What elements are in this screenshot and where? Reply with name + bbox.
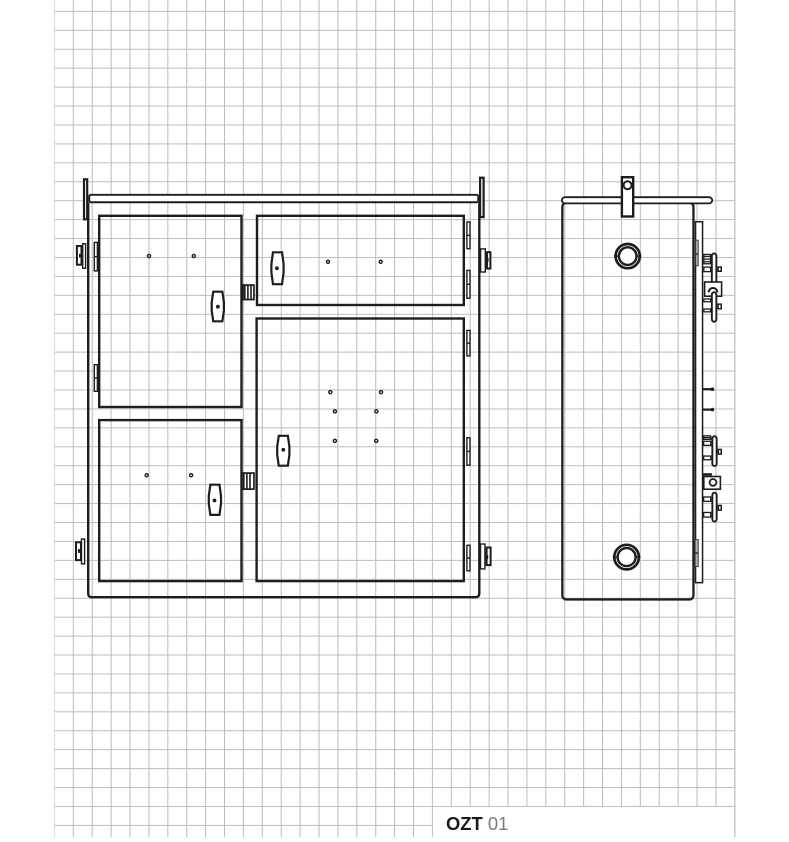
svg-text:OZT 01: OZT 01 (446, 813, 508, 834)
